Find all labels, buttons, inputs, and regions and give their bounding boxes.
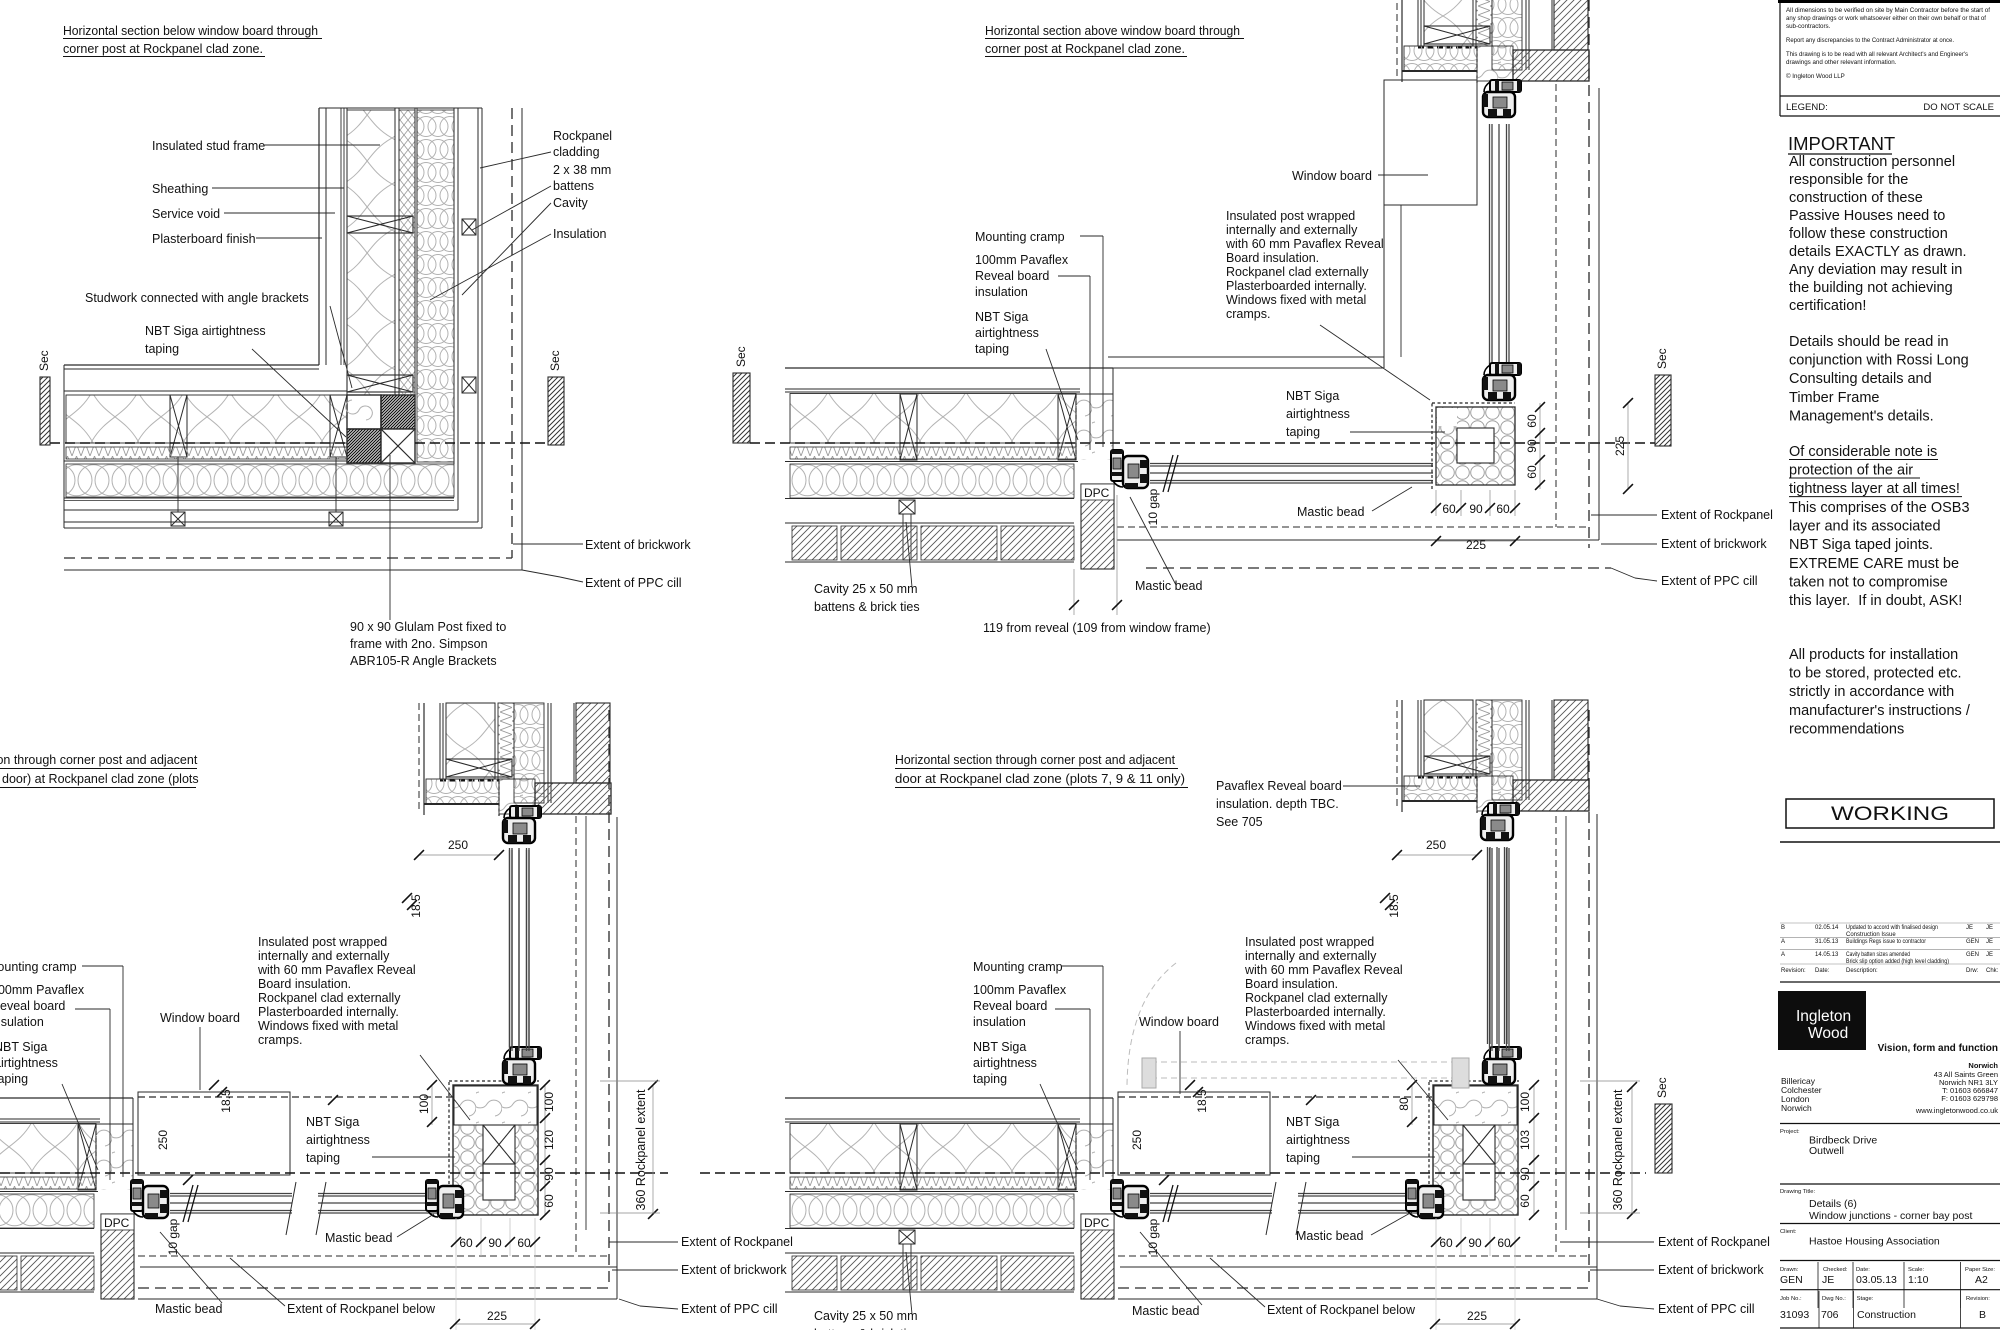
svg-text:Updated to accord with finalis: Updated to accord with finalised design <box>1846 925 1938 931</box>
svg-text:100: 100 <box>542 1092 556 1112</box>
svg-text:Drw:: Drw: <box>1966 968 1979 974</box>
svg-text:Sec: Sec <box>734 346 748 367</box>
svg-text:Revision:: Revision: <box>1781 968 1806 974</box>
svg-text:Sec: Sec <box>37 350 51 371</box>
svg-text:internally and externally: internally and externally <box>258 949 390 963</box>
svg-text:F: 01603 629798: F: 01603 629798 <box>1941 1094 1998 1103</box>
svg-text:corner post at Rockpanel clad: corner post at Rockpanel clad zone. <box>63 42 263 56</box>
svg-text:to be stored, protected etc.: to be stored, protected etc. <box>1789 666 1962 682</box>
svg-text:GEN: GEN <box>1780 1274 1803 1286</box>
svg-text:airtightness: airtightness <box>975 326 1039 340</box>
svg-text:Paper Size:: Paper Size: <box>1965 1267 1995 1273</box>
svg-text:NBT Siga: NBT Siga <box>1286 1115 1339 1129</box>
svg-text:GEN: GEN <box>1966 939 1979 945</box>
svg-text:Mastic bead: Mastic bead <box>1297 505 1364 519</box>
svg-text:225: 225 <box>1466 538 1486 552</box>
svg-text:Extent of brickwork: Extent of brickwork <box>585 538 691 552</box>
svg-text:taping: taping <box>0 1072 28 1086</box>
svg-text:corner post at Rockpanel clad: corner post at Rockpanel clad zone. <box>985 42 1185 56</box>
svg-text:Stage:: Stage: <box>1857 1296 1874 1302</box>
svg-text:Of considerable note is: Of considerable note is <box>1789 444 1937 460</box>
svg-text:60: 60 <box>1525 465 1539 479</box>
svg-text:60: 60 <box>542 1194 556 1208</box>
svg-text:airtightness: airtightness <box>1286 407 1350 421</box>
svg-text:Rockpanel clad externally: Rockpanel clad externally <box>1245 991 1388 1005</box>
svg-text:60: 60 <box>1439 1236 1453 1250</box>
svg-text:Description:: Description: <box>1846 968 1878 974</box>
svg-text:Insulated post wrapped: Insulated post wrapped <box>1245 935 1374 949</box>
svg-text:follow these construction: follow these construction <box>1789 226 1948 242</box>
svg-text:Client:: Client: <box>1780 1229 1797 1235</box>
svg-text:airtightness: airtightness <box>306 1133 370 1147</box>
svg-text:airtightness: airtightness <box>1286 1133 1350 1147</box>
svg-text:60: 60 <box>1497 1236 1511 1250</box>
svg-text:www.ingletonwood.co.uk: www.ingletonwood.co.uk <box>1915 1106 1998 1115</box>
svg-text:Extent of brickwork: Extent of brickwork <box>681 1263 787 1277</box>
svg-text:Drawn:: Drawn: <box>1780 1267 1799 1273</box>
svg-text:Sec: Sec <box>1655 348 1669 369</box>
svg-text:A2: A2 <box>1975 1274 1988 1286</box>
svg-text:Extent of PPC cill: Extent of PPC cill <box>585 576 682 590</box>
svg-text:Cavity 25 x 50 mm: Cavity 25 x 50 mm <box>814 582 918 596</box>
svg-text:cramps.: cramps. <box>1245 1033 1289 1047</box>
svg-text:with 60 mm Pavaflex Reveal: with 60 mm Pavaflex Reveal <box>1225 237 1384 251</box>
svg-text:Dwg No.:: Dwg No.: <box>1822 1296 1846 1302</box>
svg-text:Checked:: Checked: <box>1823 1267 1848 1273</box>
svg-text:battens: battens <box>553 179 594 193</box>
svg-text:Cavity: Cavity <box>553 196 588 210</box>
svg-text:Window junctions - corner bay: Window junctions - corner bay post <box>1809 1210 1972 1222</box>
svg-text:Mounting cramp: Mounting cramp <box>975 230 1065 244</box>
svg-text:construction of these: construction of these <box>1789 190 1923 206</box>
svg-text:This comprises of the OSB3: This comprises of the OSB3 <box>1789 500 1970 516</box>
svg-text:31093: 31093 <box>1780 1309 1809 1321</box>
svg-text:drawings and other relevant in: drawings and other relevant information. <box>1786 59 1897 66</box>
svg-text:taken not to compromise: taken not to compromise <box>1789 574 1948 590</box>
svg-text:Details should be read in: Details should be read in <box>1789 334 1949 350</box>
svg-text:Extent of Rockpanel: Extent of Rockpanel <box>681 1235 793 1249</box>
svg-text:Details (6): Details (6) <box>1809 1198 1857 1210</box>
svg-text:Windows fixed with metal: Windows fixed with metal <box>258 1019 398 1033</box>
svg-text:119 from reveal (109 from wind: 119 from reveal (109 from window frame) <box>983 621 1211 635</box>
svg-text:100mm Pavaflex: 100mm Pavaflex <box>975 253 1069 267</box>
svg-text:90: 90 <box>1468 1236 1482 1250</box>
svg-text:Job No.:: Job No.: <box>1780 1296 1802 1302</box>
svg-text:NBT Siga: NBT Siga <box>1286 389 1339 403</box>
svg-text:100mm Pavaflex: 100mm Pavaflex <box>973 983 1067 997</box>
svg-text:Insulated post wrapped: Insulated post wrapped <box>1226 209 1355 223</box>
svg-text:taping: taping <box>973 1072 1007 1086</box>
svg-text:All products for installation: All products for installation <box>1789 647 1958 663</box>
svg-text:© Ingleton Wood LLP: © Ingleton Wood LLP <box>1786 73 1845 80</box>
svg-text:Insulated stud frame: Insulated stud frame <box>152 139 265 153</box>
svg-text:Construction Issue: Construction Issue <box>1846 932 1896 938</box>
svg-text:insulation: insulation <box>0 1015 44 1029</box>
svg-text:door at Rockpanel clad zone (p: door at Rockpanel clad zone (plots 7, 9 … <box>895 772 1185 786</box>
svg-text:Sheathing: Sheathing <box>152 182 208 196</box>
svg-text:Extent of PPC cill: Extent of PPC cill <box>1661 574 1758 588</box>
svg-text:manufacturer's instructions /: manufacturer's instructions / <box>1789 703 1971 719</box>
svg-text:door) at Rockpanel clad zone (: door) at Rockpanel clad zone (plots <box>2 772 199 786</box>
svg-text:battens & brick ties: battens & brick ties <box>814 600 920 614</box>
svg-text:strictly in accordance with: strictly in accordance with <box>1789 684 1954 700</box>
svg-text:Plasterboarded internally.: Plasterboarded internally. <box>1226 279 1367 293</box>
svg-text:Reveal board: Reveal board <box>0 999 65 1013</box>
svg-text:2 x 38 mm: 2 x 38 mm <box>553 163 611 177</box>
svg-text:Mounting cramp: Mounting cramp <box>973 960 1063 974</box>
svg-text:90: 90 <box>1518 1167 1532 1181</box>
svg-text:Mastic bead: Mastic bead <box>1132 1304 1199 1318</box>
svg-text:Windows fixed with metal: Windows fixed with metal <box>1226 293 1366 307</box>
svg-text:Wood: Wood <box>1808 1025 1848 1042</box>
svg-text:360 Rockpanel extent: 360 Rockpanel extent <box>634 1089 648 1210</box>
svg-text:Vision, form and function: Vision, form and function <box>1878 1043 1998 1054</box>
svg-text:This drawing is to be read wit: This drawing is to be read with all rele… <box>1786 51 1968 58</box>
svg-text:insulation: insulation <box>973 1015 1026 1029</box>
svg-text:Scale:: Scale: <box>1908 1267 1925 1273</box>
svg-text:Norwich: Norwich <box>1968 1061 1998 1070</box>
svg-text:02.05.14: 02.05.14 <box>1815 925 1839 931</box>
svg-text:706: 706 <box>1821 1309 1839 1321</box>
svg-text:90: 90 <box>1469 502 1483 516</box>
svg-text:recommendations: recommendations <box>1789 721 1904 737</box>
svg-text:DO NOT SCALE: DO NOT SCALE <box>1923 102 1994 113</box>
svg-text:Hastoe Housing Association: Hastoe Housing Association <box>1809 1236 1940 1248</box>
svg-text:protection of the air: protection of the air <box>1789 463 1913 479</box>
svg-text:360 Rockpanel extent: 360 Rockpanel extent <box>1611 1089 1625 1210</box>
svg-text:Plasterboarded internally.: Plasterboarded internally. <box>258 1005 399 1019</box>
svg-text:sub-contractors.: sub-contractors. <box>1786 23 1831 30</box>
svg-text:225: 225 <box>487 1309 507 1323</box>
svg-text:Sec: Sec <box>1655 1077 1669 1098</box>
svg-text:with 60 mm Pavaflex Reveal: with 60 mm Pavaflex Reveal <box>1244 963 1403 977</box>
svg-text:Mounting cramp: Mounting cramp <box>0 960 77 974</box>
svg-text:insulation. depth TBC.: insulation. depth TBC. <box>1216 797 1339 811</box>
svg-text:internally and externally: internally and externally <box>1226 223 1358 237</box>
svg-text:1:10: 1:10 <box>1908 1274 1929 1286</box>
svg-text:this layer. If in doubt, ASK!: this layer. If in doubt, ASK! <box>1789 593 1962 609</box>
svg-text:Extent of brickwork: Extent of brickwork <box>1661 537 1767 551</box>
svg-text:60: 60 <box>459 1236 473 1250</box>
svg-text:Consulting details and: Consulting details and <box>1789 371 1932 387</box>
svg-text:taping: taping <box>1286 425 1320 439</box>
svg-text:Extent of Rockpanel: Extent of Rockpanel <box>1661 508 1773 522</box>
svg-text:Plasterboarded internally.: Plasterboarded internally. <box>1245 1005 1386 1019</box>
svg-text:250: 250 <box>448 838 468 852</box>
svg-text:120: 120 <box>542 1130 556 1150</box>
svg-text:certification!: certification! <box>1789 298 1866 314</box>
svg-text:taping: taping <box>1286 1151 1320 1165</box>
svg-text:Mastic bead: Mastic bead <box>1296 1229 1363 1243</box>
svg-text:100mm Pavaflex: 100mm Pavaflex <box>0 983 85 997</box>
svg-text:NBT Siga airtightness: NBT Siga airtightness <box>145 324 266 338</box>
svg-text:tightness layer at all times!: tightness layer at all times! <box>1789 481 1960 497</box>
svg-text:Cavity 25 x 50 mm: Cavity 25 x 50 mm <box>814 1309 918 1323</box>
svg-text:B: B <box>1781 925 1785 931</box>
svg-text:100: 100 <box>417 1094 431 1114</box>
svg-text:Buildings Regs issue to contra: Buildings Regs issue to contractor <box>1846 939 1926 945</box>
svg-text:details EXACTLY as drawn.: details EXACTLY as drawn. <box>1789 244 1967 260</box>
svg-text:31.05.13: 31.05.13 <box>1815 939 1839 945</box>
svg-text:Reveal board: Reveal board <box>973 999 1047 1013</box>
svg-text:Cavity batten sizes amended: Cavity batten sizes amended <box>1846 952 1910 958</box>
svg-text:Date:: Date: <box>1856 1267 1870 1273</box>
svg-text:All dimensions to be verified: All dimensions to be verified on site by… <box>1786 7 1990 14</box>
svg-text:Horizontal section through cor: Horizontal section through corner post a… <box>895 753 1176 767</box>
svg-text:Window board: Window board <box>1292 169 1372 183</box>
svg-text:Ingleton: Ingleton <box>1796 1008 1851 1025</box>
svg-text:Revision:: Revision: <box>1966 1296 1990 1302</box>
svg-text:See 705: See 705 <box>1216 815 1263 829</box>
svg-text:responsible for the: responsible for the <box>1789 172 1908 188</box>
svg-text:Board insulation.: Board insulation. <box>258 977 351 991</box>
svg-text:60: 60 <box>1442 502 1456 516</box>
svg-text:225: 225 <box>1467 1309 1487 1323</box>
svg-text:JE: JE <box>1986 939 1993 945</box>
svg-text:WORKING: WORKING <box>1831 803 1949 825</box>
svg-text:Reveal board: Reveal board <box>975 269 1049 283</box>
svg-text:JE: JE <box>1986 952 1993 958</box>
svg-text:225: 225 <box>1613 436 1627 456</box>
svg-text:14.05.13: 14.05.13 <box>1815 952 1839 958</box>
svg-text:Extent of Rockpanel: Extent of Rockpanel <box>1658 1235 1770 1249</box>
svg-text:JE: JE <box>1822 1274 1834 1286</box>
svg-text:insulation: insulation <box>975 285 1028 299</box>
svg-text:Extent of Rockpanel below: Extent of Rockpanel below <box>1267 1303 1416 1317</box>
svg-text:LEGEND:: LEGEND: <box>1786 102 1828 113</box>
svg-text:Any deviation may result in: Any deviation may result in <box>1789 262 1962 278</box>
svg-text:All construction personnel: All construction personnel <box>1789 154 1955 170</box>
svg-text:frame with 2no. Simpson: frame with 2no. Simpson <box>350 637 488 651</box>
svg-text:90: 90 <box>488 1236 502 1250</box>
svg-text:Project:: Project: <box>1780 1129 1800 1135</box>
svg-text:250: 250 <box>1130 1130 1144 1150</box>
svg-text:03.05.13: 03.05.13 <box>1856 1274 1897 1286</box>
svg-text:Report any discrepancies to th: Report any discrepancies to the Contract… <box>1786 37 1954 44</box>
svg-text:cladding: cladding <box>553 145 600 159</box>
svg-text:Horizontal section through cor: Horizontal section through corner post a… <box>0 753 198 767</box>
svg-text:with 60 mm Pavaflex Reveal: with 60 mm Pavaflex Reveal <box>257 963 416 977</box>
svg-text:Mastic bead: Mastic bead <box>325 1231 392 1245</box>
svg-text:NBT Siga: NBT Siga <box>0 1040 47 1054</box>
svg-text:Management's details.: Management's details. <box>1789 408 1934 424</box>
svg-text:250: 250 <box>1426 838 1446 852</box>
svg-text:taping: taping <box>975 342 1009 356</box>
svg-text:NBT Siga: NBT Siga <box>306 1115 359 1129</box>
svg-text:103: 103 <box>1518 1130 1532 1150</box>
svg-text:the building not achieving: the building not achieving <box>1789 280 1953 296</box>
svg-text:Timber Frame: Timber Frame <box>1789 390 1880 406</box>
svg-text:airtightness: airtightness <box>0 1056 58 1070</box>
svg-text:Windows fixed with metal: Windows fixed with metal <box>1245 1019 1385 1033</box>
svg-text:any shop drawings or work what: any shop drawings or work whatsoever eit… <box>1786 15 1986 22</box>
svg-text:Extent of brickwork: Extent of brickwork <box>1658 1263 1764 1277</box>
svg-text:IMPORTANT: IMPORTANT <box>1788 133 1895 154</box>
svg-text:JE: JE <box>1966 925 1973 931</box>
svg-text:JE: JE <box>1986 925 1993 931</box>
svg-text:Rockpanel clad externally: Rockpanel clad externally <box>1226 265 1369 279</box>
svg-text:Chk:: Chk: <box>1986 968 1999 974</box>
svg-text:A: A <box>1781 939 1785 945</box>
svg-text:Plasterboard finish: Plasterboard finish <box>152 232 256 246</box>
svg-text:Mastic bead: Mastic bead <box>155 1302 222 1316</box>
svg-text:Insulated post wrapped: Insulated post wrapped <box>258 935 387 949</box>
svg-text:airtightness: airtightness <box>973 1056 1037 1070</box>
svg-text:Studwork connected with angle: Studwork connected with angle brackets <box>85 291 309 305</box>
svg-text:90: 90 <box>1525 439 1539 453</box>
svg-text:taping: taping <box>145 342 179 356</box>
svg-text:60: 60 <box>1496 502 1510 516</box>
svg-text:250: 250 <box>156 1130 170 1150</box>
svg-text:A: A <box>1781 952 1785 958</box>
svg-text:Extent of PPC cill: Extent of PPC cill <box>681 1302 778 1316</box>
svg-text:Insulation: Insulation <box>553 227 607 241</box>
svg-text:taping: taping <box>306 1151 340 1165</box>
svg-text:Horizontal section above windo: Horizontal section above window board th… <box>985 24 1240 38</box>
svg-text:ABR105-R Angle Brackets: ABR105-R Angle Brackets <box>350 654 497 668</box>
svg-text:90 x 90 Glulam Post fixed to: 90 x 90 Glulam Post fixed to <box>350 620 506 634</box>
svg-text:Board insulation.: Board insulation. <box>1226 251 1319 265</box>
svg-text:Horizontal section below windo: Horizontal section below window board th… <box>63 24 318 38</box>
svg-text:60: 60 <box>517 1236 531 1250</box>
svg-text:B: B <box>1979 1309 1986 1321</box>
svg-text:Outwell: Outwell <box>1809 1145 1844 1157</box>
svg-text:GEN: GEN <box>1966 952 1979 958</box>
svg-text:Drawing Title:: Drawing Title: <box>1780 1189 1816 1195</box>
svg-text:Service void: Service void <box>152 207 220 221</box>
svg-text:Window board: Window board <box>1139 1015 1219 1029</box>
svg-text:Window board: Window board <box>160 1011 240 1025</box>
svg-text:18.5: 18.5 <box>409 894 423 918</box>
svg-text:Extent of PPC cill: Extent of PPC cill <box>1658 1302 1755 1316</box>
svg-text:Pavaflex Reveal board: Pavaflex Reveal board <box>1216 779 1342 793</box>
svg-text:NBT Siga: NBT Siga <box>973 1040 1026 1054</box>
svg-text:cramps.: cramps. <box>1226 307 1270 321</box>
svg-text:Passive Houses need to: Passive Houses need to <box>1789 208 1945 224</box>
svg-text:18.5: 18.5 <box>1387 894 1401 918</box>
svg-text:Extent of Rockpanel below: Extent of Rockpanel below <box>287 1302 436 1316</box>
svg-text:EXTREME CARE must be: EXTREME CARE must be <box>1789 556 1959 572</box>
svg-text:Norwich: Norwich <box>1781 1103 1812 1113</box>
svg-text:Mastic bead: Mastic bead <box>1135 579 1202 593</box>
svg-text:Brick slip option added (high: Brick slip option added (high level clad… <box>1846 959 1949 965</box>
svg-text:60: 60 <box>1525 414 1539 428</box>
svg-text:Board insulation.: Board insulation. <box>1245 977 1338 991</box>
svg-text:Sec: Sec <box>548 350 562 371</box>
svg-text:conjunction with Rossi Long: conjunction with Rossi Long <box>1789 353 1969 369</box>
svg-text:Date:: Date: <box>1815 968 1830 974</box>
svg-text:60: 60 <box>1518 1194 1532 1208</box>
svg-text:NBT Siga taped joints.: NBT Siga taped joints. <box>1789 537 1933 553</box>
svg-text:Rockpanel clad externally: Rockpanel clad externally <box>258 991 401 1005</box>
svg-text:NBT Siga: NBT Siga <box>975 310 1028 324</box>
svg-text:100: 100 <box>1518 1092 1532 1112</box>
svg-text:90: 90 <box>542 1167 556 1181</box>
svg-text:internally and externally: internally and externally <box>1245 949 1377 963</box>
svg-text:Construction: Construction <box>1857 1309 1916 1321</box>
svg-text:layer and its associated: layer and its associated <box>1789 519 1941 535</box>
svg-text:Rockpanel: Rockpanel <box>553 129 612 143</box>
svg-text:cramps.: cramps. <box>258 1033 302 1047</box>
svg-text:80: 80 <box>1397 1097 1411 1111</box>
